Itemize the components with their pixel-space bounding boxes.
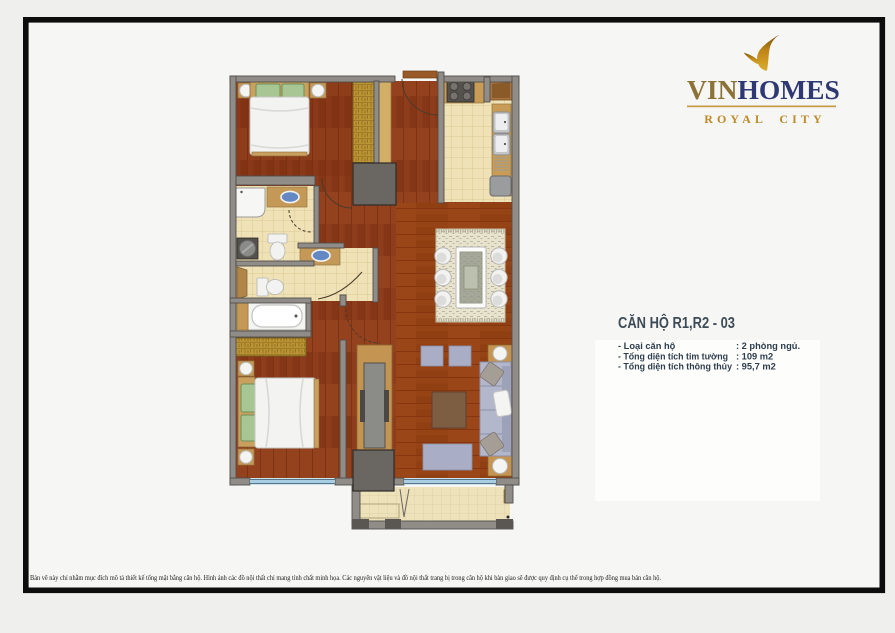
svg-text:ROYAL CITY: ROYAL CITY [704,112,826,126]
svg-text:: 2 phòng ngủ.: : 2 phòng ngủ. [736,341,800,351]
svg-text:: 95,7 m2: : 95,7 m2 [736,362,776,372]
svg-text:VINHOMES: VINHOMES [687,74,840,105]
svg-text:- Loại căn hộ: - Loại căn hộ [618,341,676,351]
svg-text:CĂN HỘ R1,R2 - 03: CĂN HỘ R1,R2 - 03 [618,314,735,332]
svg-text:: 109 m2: : 109 m2 [736,352,773,362]
svg-text:Bản vẽ này chỉ nhằm mục đích m: Bản vẽ này chỉ nhằm mục đích mô tả thiết… [30,573,661,582]
svg-text:- Tổng diện tích thông thủy: - Tổng diện tích thông thủy [618,362,733,372]
svg-text:- Tổng diện tích tim tường: - Tổng diện tích tim tường [618,352,728,362]
